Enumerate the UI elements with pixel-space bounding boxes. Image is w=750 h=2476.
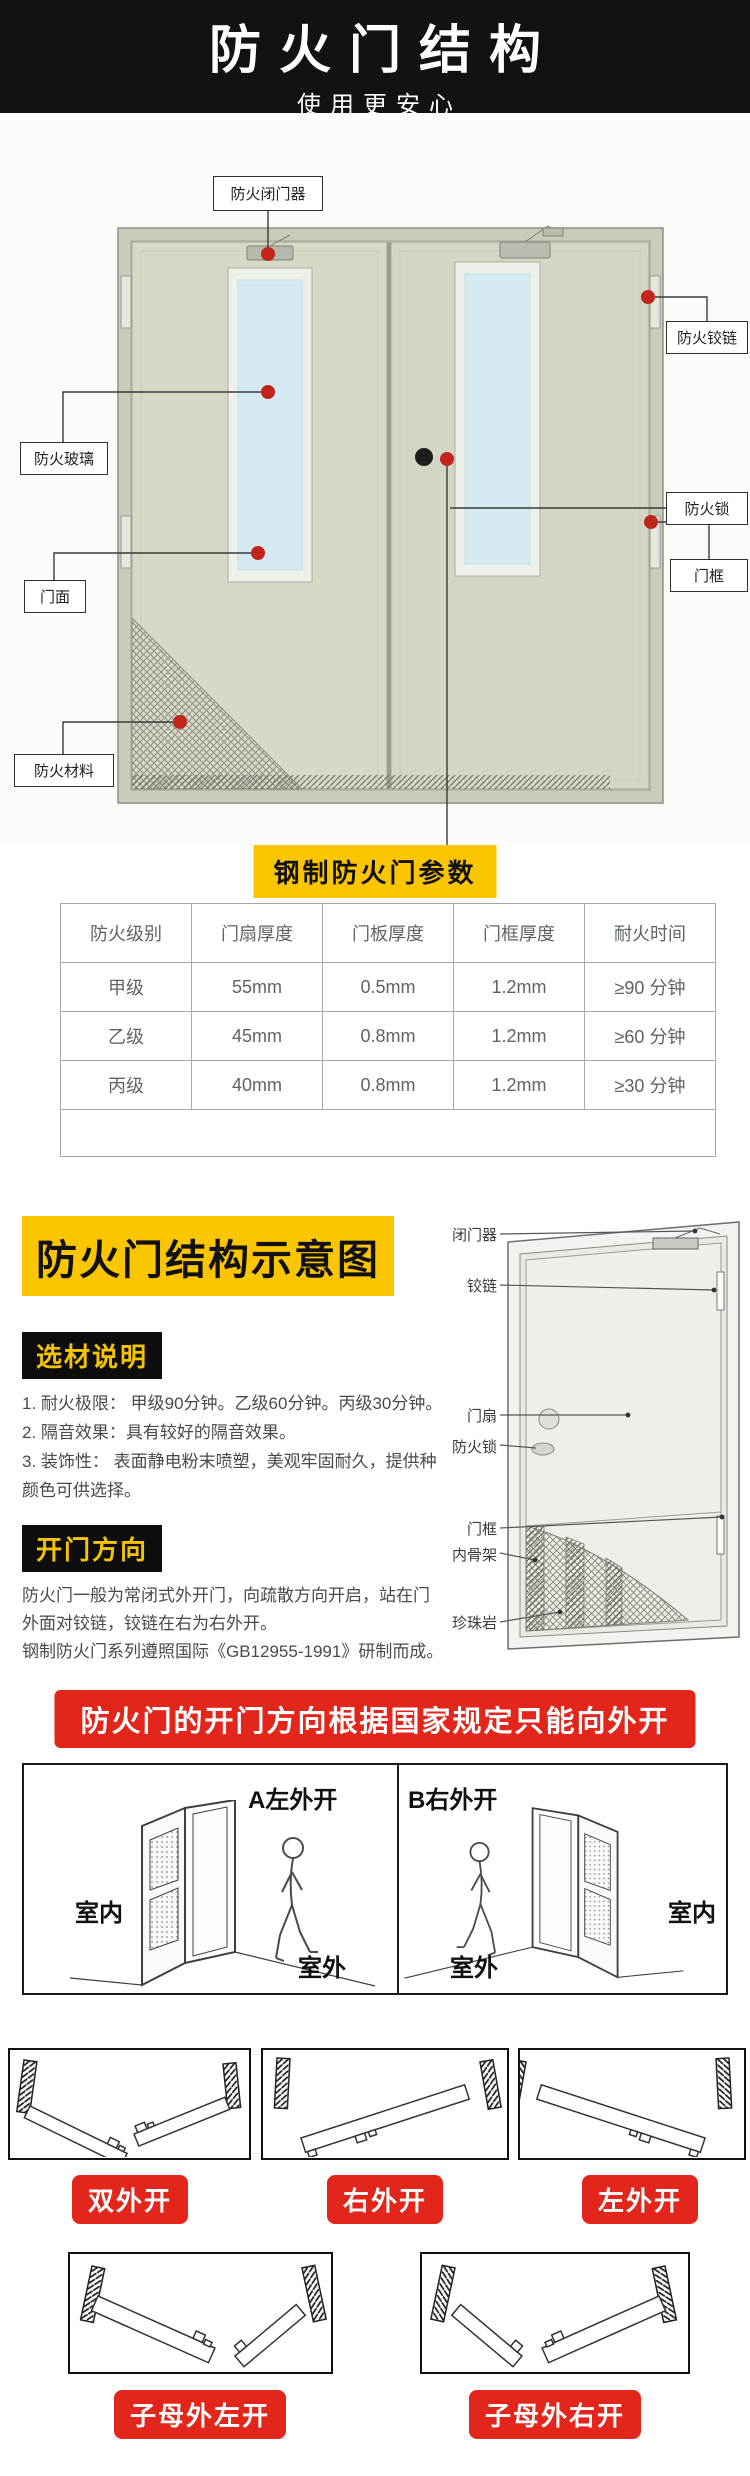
- pill-double-outward: 双外开: [72, 2175, 188, 2224]
- table-cell: 0.8mm: [323, 1061, 454, 1110]
- label-inner-skeleton: 内骨架: [425, 1544, 497, 1565]
- callout-door-face: 门面: [24, 580, 86, 613]
- plan-right-outward: [261, 2048, 509, 2160]
- page-header: 防火门结构 使用更安心: [0, 0, 750, 113]
- panel-b-outside-label: 室外: [450, 1948, 498, 1983]
- panel-b-inside-label: 室内: [668, 1893, 716, 1928]
- direction-paragraphs: 防火门一般为常闭式外开门，向疏散方向开启，站在门外面对铰链，铰链在右为右外开。 …: [22, 1582, 446, 1666]
- material-heading: 选材说明: [22, 1332, 162, 1379]
- material-item: 3. 装饰性： 表面静电粉末喷塑，美观牢固耐久，提供种颜色可供选择。: [22, 1447, 446, 1505]
- param-section-title: 钢制防火门参数: [253, 845, 496, 898]
- table-cell: 55mm: [192, 963, 323, 1012]
- table-cell: 丙级: [61, 1061, 192, 1110]
- pill-unequal-right: 子母外右开: [469, 2390, 641, 2439]
- direction-heading: 开门方向: [22, 1525, 162, 1572]
- table-cell: ≥90 分钟: [585, 963, 716, 1012]
- panel-a-inside-label: 室内: [75, 1893, 123, 1928]
- callout-fire-glass: 防火玻璃: [20, 442, 108, 475]
- plan-left-outward: [518, 2048, 746, 2160]
- param-table-header: 防火级别 门扇厚度 门板厚度 门框厚度 耐火时间: [61, 904, 716, 963]
- table-cell: ≥60 分钟: [585, 1012, 716, 1061]
- table-cell: 甲级: [61, 963, 192, 1012]
- table-cell: 1.2mm: [454, 1061, 585, 1110]
- table-cell: 乙级: [61, 1012, 192, 1061]
- plan-double-outward: [8, 2048, 251, 2160]
- label-door-leaf: 门扇: [425, 1405, 497, 1426]
- col-header: 门框厚度: [454, 904, 585, 963]
- table-empty-row: [61, 1110, 716, 1157]
- material-item: 2. 隔音效果：具有较好的隔音效果。: [22, 1418, 446, 1447]
- direction-paragraph: 钢制防火门系列遵照国际《GB12955-1991》研制而成。: [22, 1638, 446, 1666]
- door-photo-section: 防火闭门器 防火铰链 防火玻璃 防火锁 门面 门框 防火材料: [0, 113, 750, 845]
- col-header: 门扇厚度: [192, 904, 323, 963]
- peephole-dot: [415, 448, 433, 466]
- plan-unequal-right: [420, 2252, 690, 2374]
- pill-right-outward: 右外开: [327, 2175, 443, 2224]
- table-row: 乙级 45mm 0.8mm 1.2mm ≥60 分钟: [61, 1012, 716, 1061]
- material-items: 1. 耐火极限： 甲级90分钟。乙级60分钟。丙级30分钟。 2. 隔音效果：具…: [22, 1389, 446, 1505]
- callout-fire-material: 防火材料: [14, 754, 114, 787]
- panel-a-outside-label: 室外: [298, 1948, 346, 1983]
- callout-door-frame: 门框: [670, 559, 748, 592]
- table-row: 丙级 40mm 0.8mm 1.2mm ≥30 分钟: [61, 1061, 716, 1110]
- table-cell: 1.2mm: [454, 963, 585, 1012]
- table-cell: 1.2mm: [454, 1012, 585, 1061]
- direction-paragraph: 防火门一般为常闭式外开门，向疏散方向开启，站在门外面对铰链，铰链在右为右外开。: [22, 1582, 446, 1638]
- label-door-closer: 闭门器: [425, 1224, 497, 1245]
- plan-unequal-left: [68, 2252, 333, 2374]
- param-table: 防火级别 门扇厚度 门板厚度 门框厚度 耐火时间 甲级 55mm 0.5mm 1…: [60, 903, 716, 1157]
- person-figure: [276, 1838, 318, 1961]
- regulation-banner: 防火门的开门方向根据国家规定只能向外开: [54, 1690, 695, 1748]
- callout-fire-hinge: 防火铰链: [666, 321, 748, 354]
- panel-divider: [397, 1765, 399, 1993]
- page: 防火门结构 使用更安心: [0, 0, 750, 2476]
- double-door-diagram: [0, 113, 750, 845]
- col-header: 门板厚度: [323, 904, 454, 963]
- table-cell: 0.5mm: [323, 963, 454, 1012]
- table-cell: ≥30 分钟: [585, 1061, 716, 1110]
- schematic-text-column: 防火门结构示意图 选材说明 1. 耐火极限： 甲级90分钟。乙级60分钟。丙级3…: [22, 1216, 446, 1666]
- schematic-title: 防火门结构示意图: [22, 1216, 394, 1296]
- pill-unequal-left: 子母外左开: [114, 2390, 286, 2439]
- pill-left-outward: 左外开: [582, 2175, 698, 2224]
- table-cell: 40mm: [192, 1061, 323, 1110]
- label-perlite: 珍珠岩: [425, 1612, 497, 1633]
- material-item: 1. 耐火极限： 甲级90分钟。乙级60分钟。丙级30分钟。: [22, 1389, 446, 1418]
- table-cell: 0.8mm: [323, 1012, 454, 1061]
- col-header: 防火级别: [61, 904, 192, 963]
- label-hinge: 铰链: [425, 1275, 497, 1296]
- label-door-frame: 门框: [425, 1518, 497, 1539]
- page-title: 防火门结构: [0, 0, 750, 83]
- table-cell: 45mm: [192, 1012, 323, 1061]
- table-row: 甲级 55mm 0.5mm 1.2mm ≥90 分钟: [61, 963, 716, 1012]
- callout-fire-lock: 防火锁: [666, 492, 748, 525]
- label-fire-lock: 防火锁: [425, 1436, 497, 1457]
- callout-fire-door-closer: 防火闭门器: [213, 176, 323, 211]
- col-header: 耐火时间: [585, 904, 716, 963]
